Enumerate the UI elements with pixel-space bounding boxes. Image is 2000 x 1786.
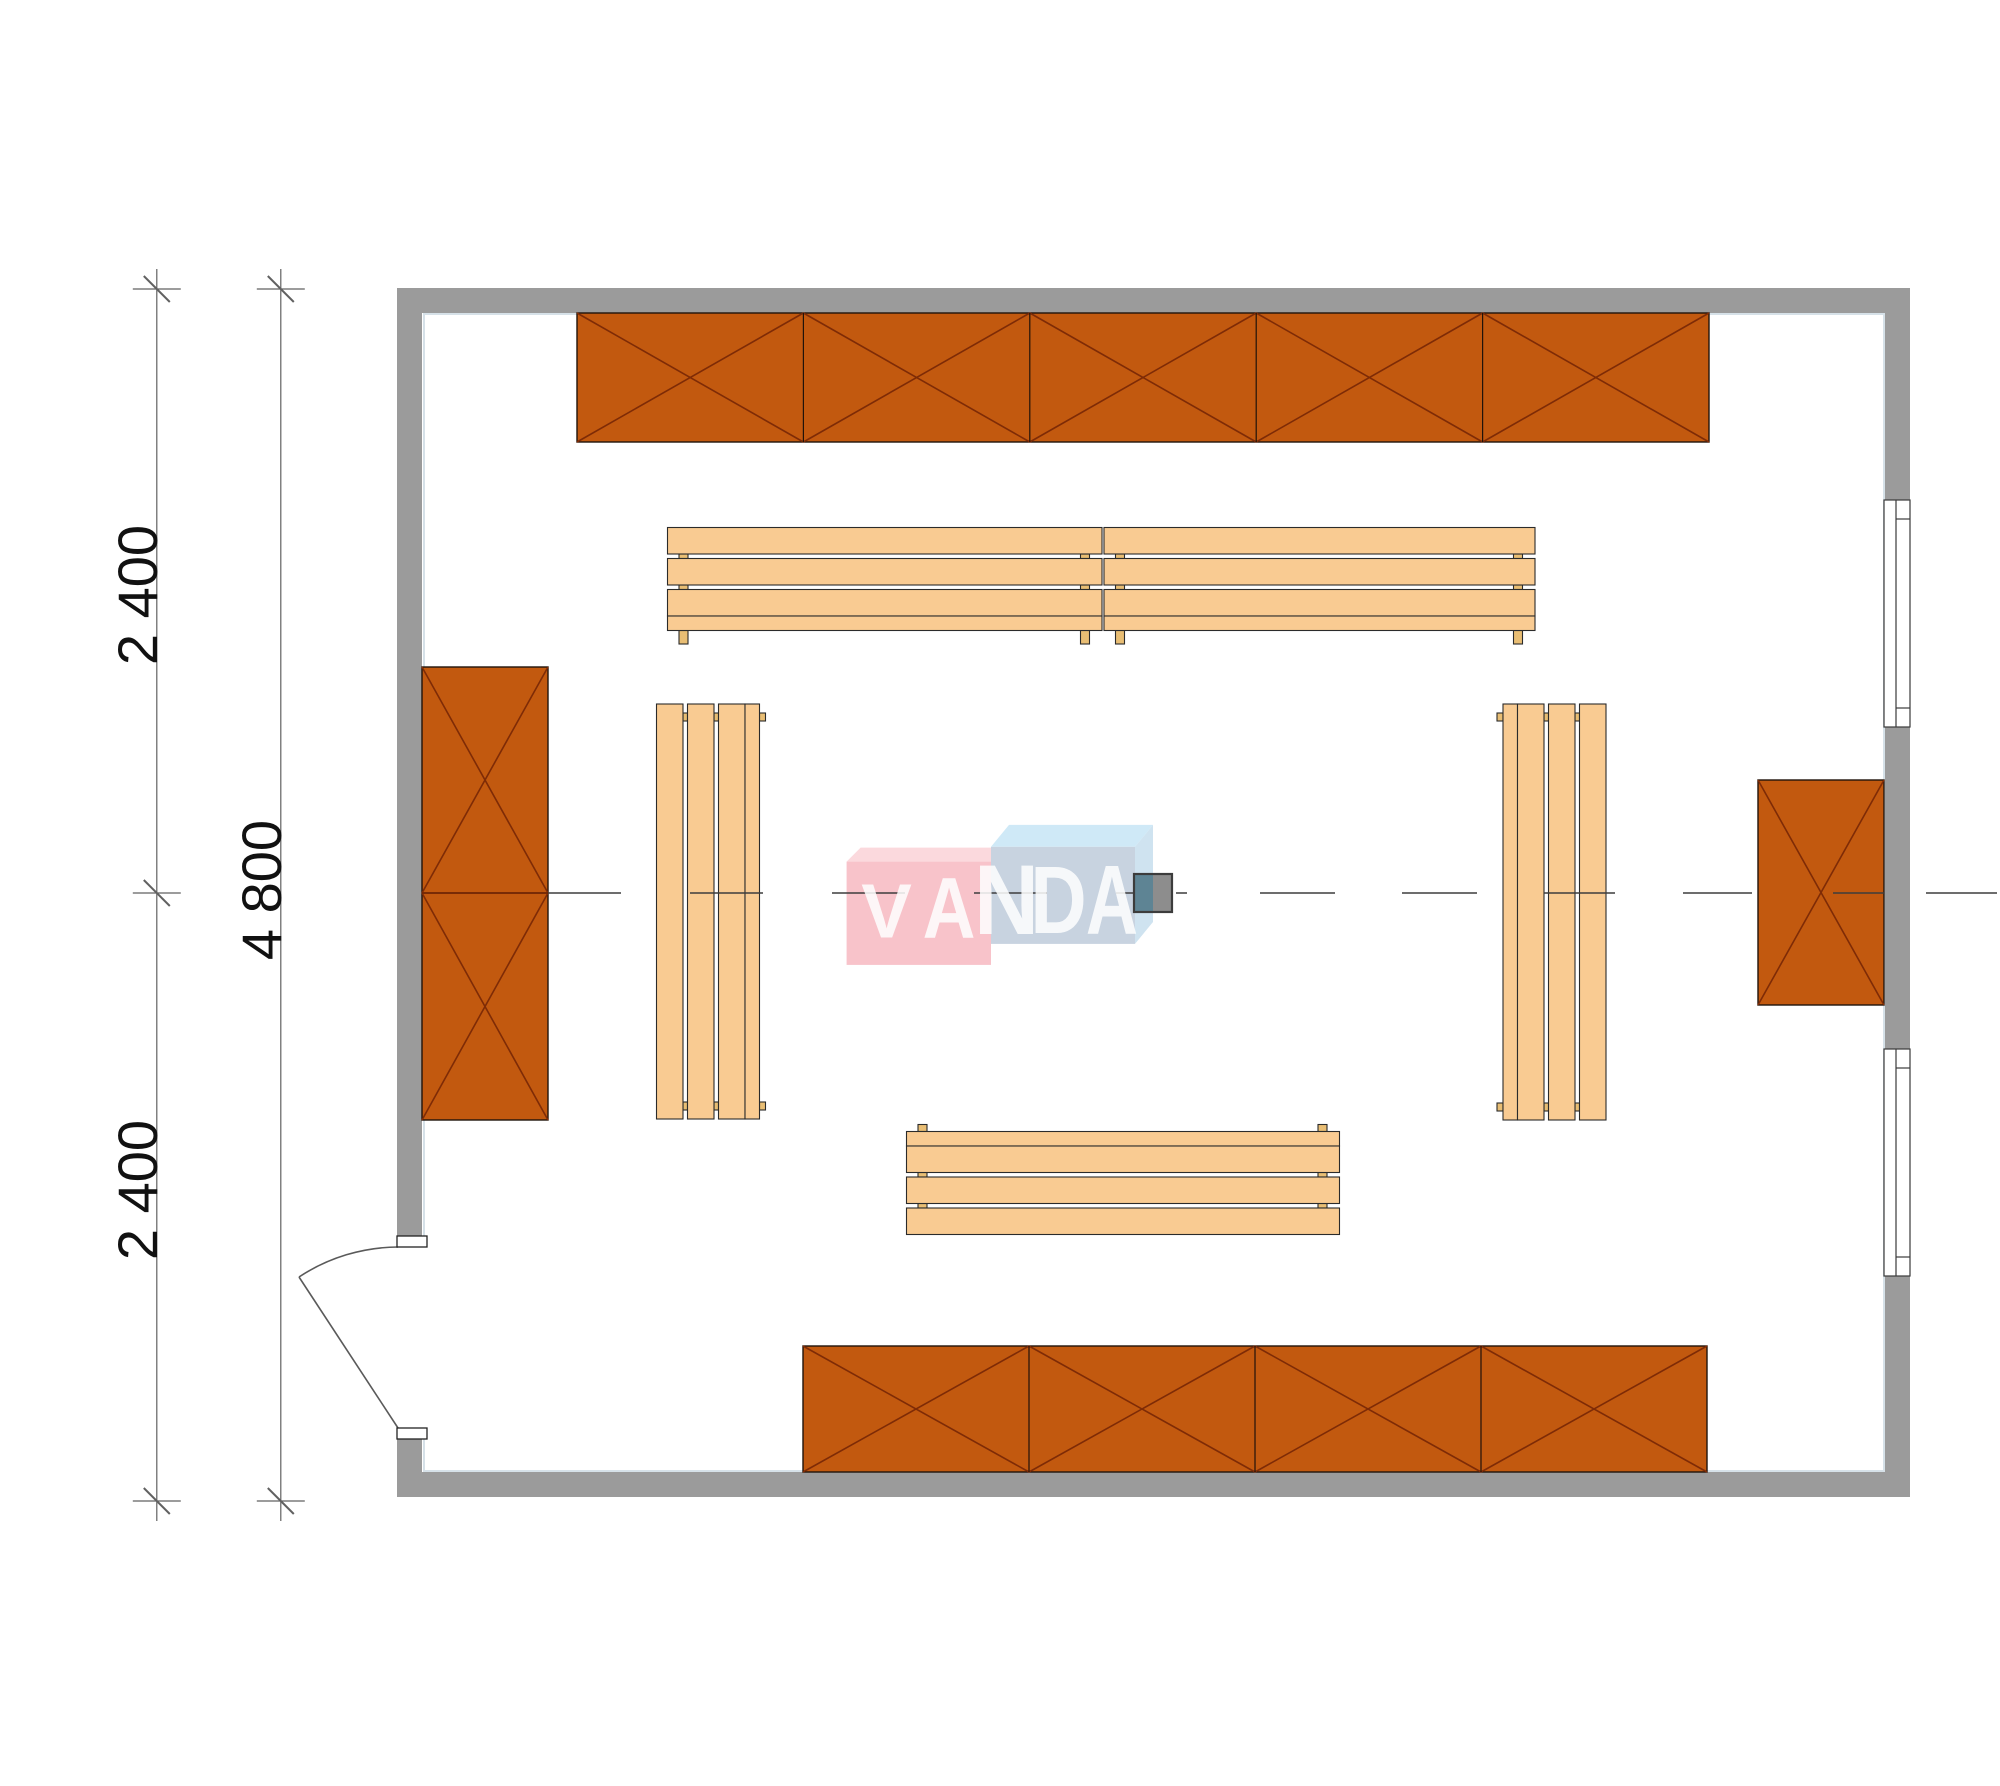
svg-text:V: V <box>861 869 912 955</box>
svg-text:N: N <box>974 845 1039 956</box>
svg-text:4 800: 4 800 <box>230 820 293 960</box>
svg-text:D: D <box>1030 846 1086 954</box>
svg-text:A: A <box>1086 846 1138 955</box>
svg-text:2 400: 2 400 <box>106 525 169 665</box>
svg-text:A: A <box>923 860 976 956</box>
svg-text:2 400: 2 400 <box>106 1120 169 1260</box>
